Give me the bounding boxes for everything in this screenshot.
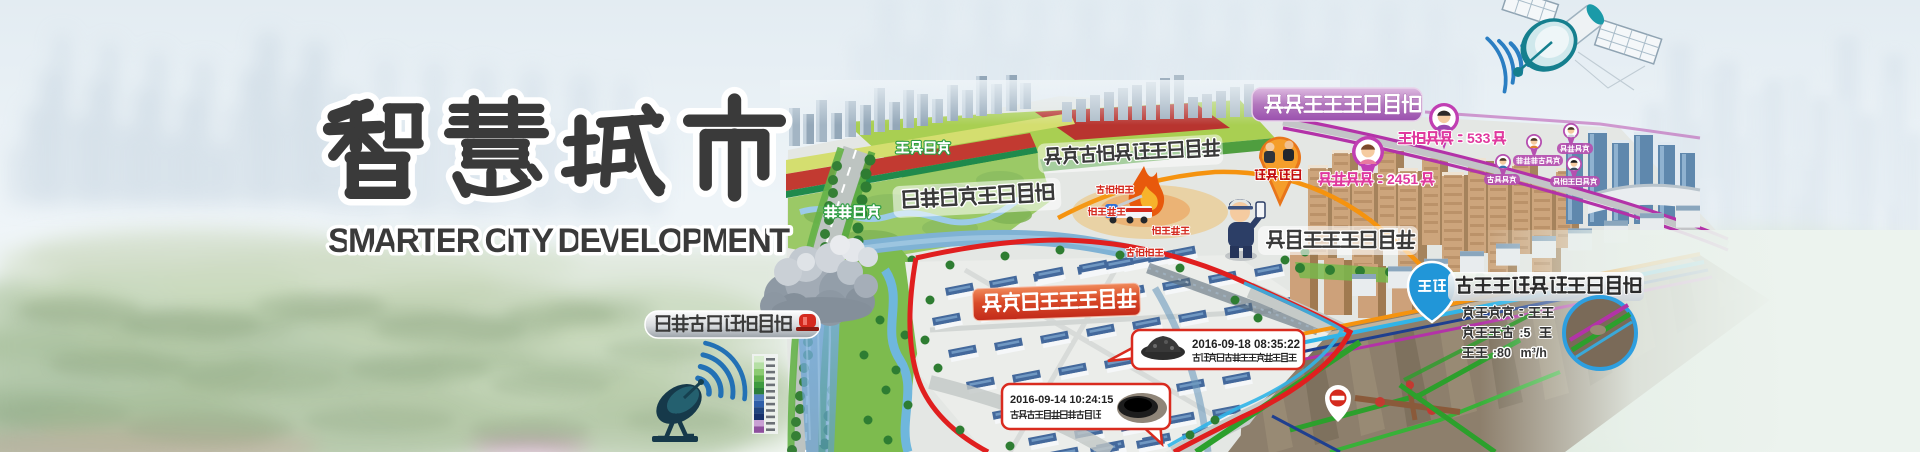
svg-text:2451: 2451 [1387, 171, 1418, 187]
svg-text:SMARTER CITY DEVELOPMENT: SMARTER CITY DEVELOPMENT [328, 222, 790, 260]
svg-text:2016-09-18 08:35:22: 2016-09-18 08:35:22 [1192, 339, 1300, 351]
svg-text:533: 533 [1467, 130, 1491, 146]
svg-text:2016-09-14 10:24:15: 2016-09-14 10:24:15 [1010, 394, 1113, 406]
svg-text::80: :80 [1493, 346, 1511, 360]
svg-text:m³/h: m³/h [1521, 346, 1547, 360]
svg-text::5: :5 [1519, 326, 1530, 340]
